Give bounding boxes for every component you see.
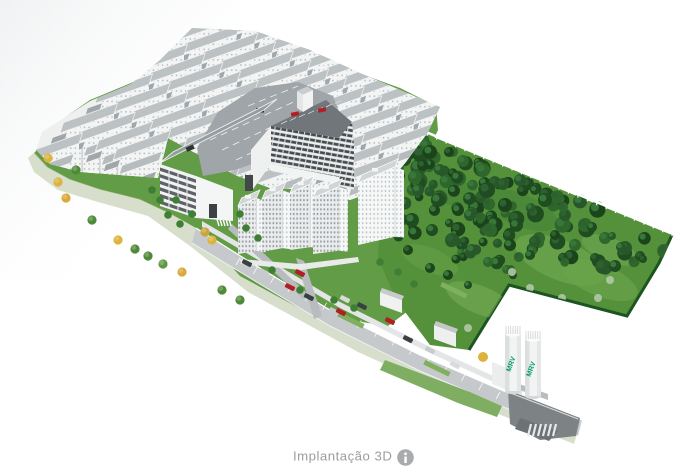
svg-text:Implantação 3D: Implantação 3D xyxy=(293,449,392,464)
